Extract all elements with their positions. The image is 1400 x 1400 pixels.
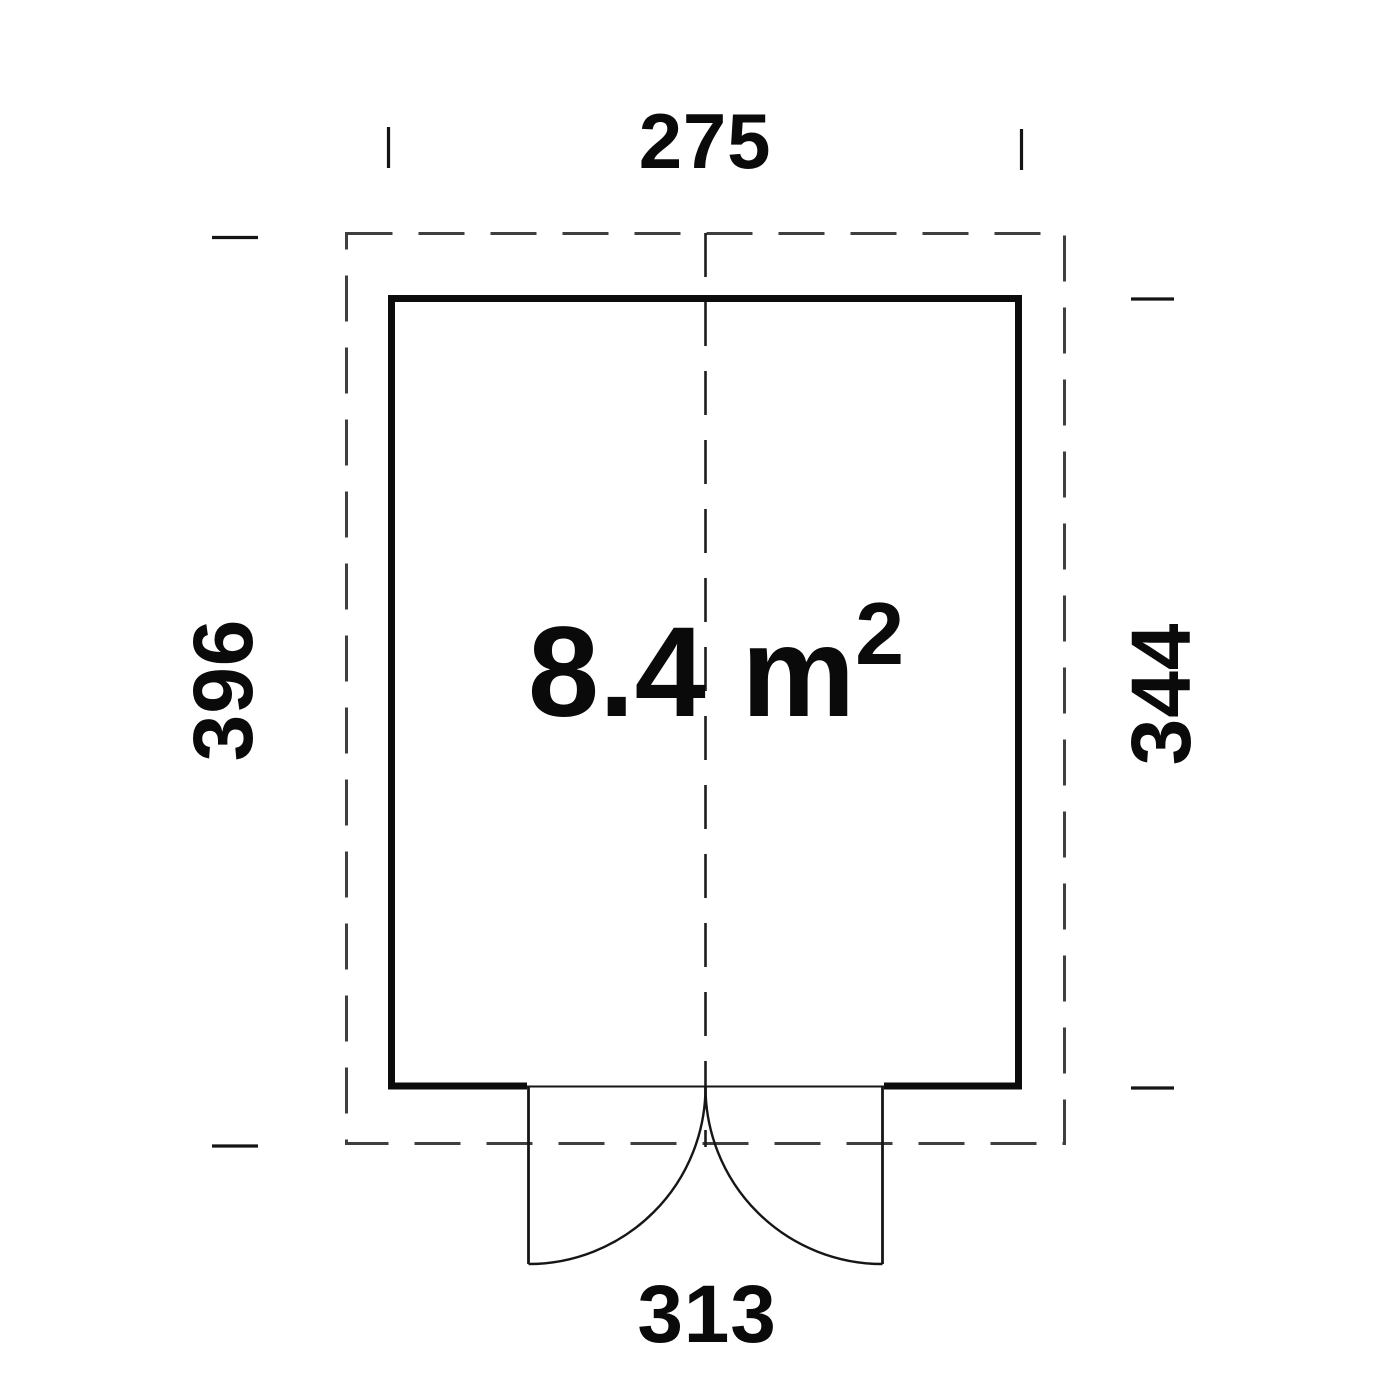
floor-plan-canvas: 275 396 344 313 8.4 m2 <box>0 0 1400 1400</box>
area-label: 8.4 m2 <box>528 584 904 744</box>
dim-label-top-width: 275 <box>639 97 771 185</box>
area-label-superscript: 2 <box>855 584 904 683</box>
dim-label-left-height: 396 <box>176 619 270 762</box>
dim-label-bottom-width: 313 <box>637 1269 776 1360</box>
dim-label-right-height: 344 <box>1114 623 1208 766</box>
door-right-swing-arc <box>706 1087 883 1264</box>
door-left-swing-arc <box>529 1087 706 1264</box>
area-label-value: 8.4 m <box>528 601 855 744</box>
floor-plan-drawing: 275 396 344 313 8.4 m2 <box>0 0 1400 1400</box>
